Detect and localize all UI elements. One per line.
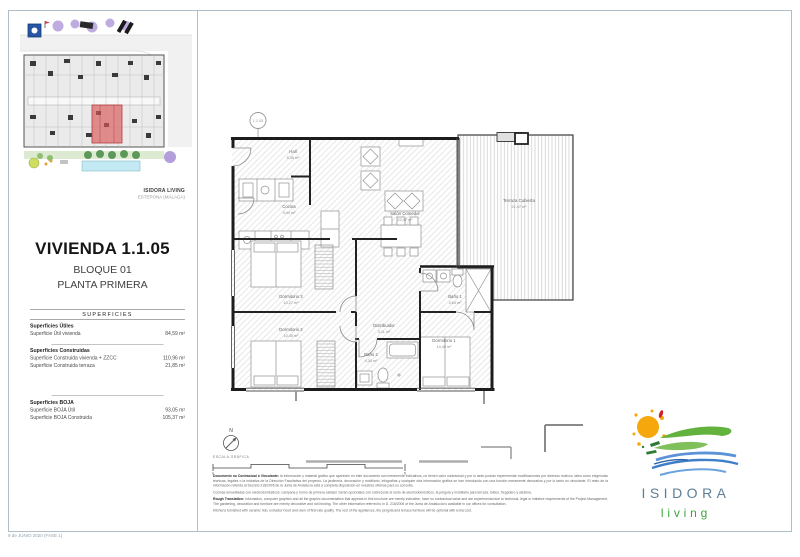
logo-sun-icon (633, 410, 666, 446)
surface-row: Superficie BOJA Construida 105,37 m² (30, 414, 185, 422)
sidebar-divider (197, 10, 198, 531)
surface-row: Superficie Útil vivienda 84,59 m² (30, 330, 185, 338)
room-area-terraza: 21,47 m² (512, 205, 528, 209)
legal-body-en: Information, computer graphics and all t… (213, 498, 608, 506)
legal-lead-en: Rough Translation: (213, 498, 244, 502)
bed-dormitorio2-icon (251, 341, 335, 387)
logo-tagline: living (661, 506, 711, 520)
surface-row: Superficie BOJA Útil 93,05 m² (30, 407, 185, 415)
room-label-bano2: Baño 2 (364, 352, 378, 357)
surface-label: Superficie BOJA Útil (30, 407, 75, 415)
room-label-terraza: Terraza Cubierta (503, 198, 535, 203)
logo-wordmark: ISIDORA (641, 485, 730, 501)
legal-paragraph-es: Documento no Contractual ó Vinculante: l… (213, 474, 608, 488)
room-area-dormitorio2: 10,45 m² (284, 334, 300, 338)
surface-value: 110,96 m² (163, 355, 185, 363)
floor-plan: 1.1.05 Hall 5,35 m² Cocina 9,44 m² Salón… (205, 95, 605, 477)
site-trees-top (53, 19, 134, 35)
neighbour-walls (296, 391, 583, 462)
group-title: Superficies Útiles (30, 324, 185, 330)
legal-paragraph-en: Rough Translation: Information, computer… (213, 497, 608, 507)
surface-value: 105,37 m² (162, 414, 185, 422)
legal-note-es: Cocinas amuebladas con electrodomésticos… (213, 490, 608, 495)
room-area-cocina: 9,44 m² (283, 211, 297, 215)
separator (52, 345, 164, 346)
legal-note-es-text: Cocinas amuebladas con electrodomésticos… (213, 491, 532, 495)
surfaces-panel: SUPERFICIES Superficies Útiles Superfici… (30, 309, 185, 422)
room-label-dormitorio1: Dormitorio 1 (432, 338, 456, 343)
room-label-salon: Salón Comedor (390, 211, 420, 216)
legal-lead-es: Documento no Contractual ó Vinculante: (213, 475, 279, 479)
surface-row: Superficie Construida terraza 21,85 m² (30, 362, 185, 370)
room-label-distribuidor: Distribuidor (373, 323, 395, 328)
legal-disclaimer: Documento no Contractual ó Vinculante: l… (213, 474, 608, 515)
room-label-bano1: Baño 1 (448, 294, 462, 299)
surfaces-group-utiles: Superficies Útiles Superficie Útil vivie… (30, 324, 185, 338)
room-label-dormitorio3: Dormitorio 3 (279, 294, 303, 299)
surfaces-group-construidas: Superficies Construidas Superficie Const… (30, 348, 185, 370)
block-label: BLOQUE 01 (8, 264, 197, 276)
scale-bar: ESCALA GRÁFICA 0 5 (212, 455, 406, 476)
legal-note-en: Kitchens furnished with ceramic hob, ext… (213, 509, 608, 514)
room-area-dormitorio3: 10,27 m² (284, 301, 300, 305)
site-key-plan (20, 15, 192, 173)
unit-marker-label: 1.1.05 (253, 119, 264, 123)
page-title: VIVIENDA 1.1.05 (8, 239, 197, 259)
surface-label: Superficie Construida vivienda + ZZCC (30, 355, 117, 363)
footer-date-note: 9 de JUNIO 2020 (FASE 1) (8, 533, 208, 538)
brand-block: ISIDORA LIVING ESTEPONA (MÁLAGA) (10, 188, 185, 200)
north-label: N (229, 428, 233, 434)
scale-label: ESCALA GRÁFICA (213, 455, 249, 459)
group-title: Superficies Construidas (30, 348, 185, 354)
logo-waves-icon (652, 453, 738, 475)
room-label-cocina: Cocina (282, 204, 296, 209)
surface-label: Superficie BOJA Construida (30, 414, 92, 422)
unit-marker-balloon: 1.1.05 (250, 113, 266, 138)
legal-note-en-text: Kitchens furnished with ceramic hob, ext… (213, 509, 472, 513)
surface-value: 93,05 m² (165, 407, 185, 415)
unit-title-block: VIVIENDA 1.1.05 BLOQUE 01 PLANTA PRIMERA (8, 239, 197, 291)
surfaces-header: SUPERFICIES (30, 309, 185, 320)
room-area-hall: 5,35 m² (287, 156, 301, 160)
separator (52, 396, 164, 397)
surface-label: Superficie Útil vivienda (30, 330, 81, 338)
site-highlighted-unit (92, 105, 122, 143)
room-label-dormitorio2: Dormitorio 2 (279, 327, 303, 332)
floor-label: PLANTA PRIMERA (8, 279, 197, 291)
surfaces-group-boja: Superficies BOJA Superficie BOJA Útil 93… (30, 400, 185, 422)
surface-value: 21,85 m² (165, 362, 185, 370)
surface-label: Superficie Construida terraza (30, 362, 95, 370)
surface-value: 84,59 m² (165, 330, 185, 338)
surface-row: Superficie Construida vivienda + ZZCC 11… (30, 355, 185, 363)
group-title: Superficies BOJA (30, 400, 185, 406)
room-label-hall: Hall (289, 149, 296, 154)
room-area-bano2: 4,30 m² (365, 359, 379, 363)
room-area-bano1: 4,64 m² (449, 301, 463, 305)
site-garden-pool (24, 150, 176, 171)
isidora-living-logo: ISIDORA living (612, 408, 790, 530)
brand-location: ESTEPONA (MÁLAGA) (10, 194, 185, 200)
north-arrow-icon: N (224, 428, 239, 451)
bed-dormitorio3-icon (251, 241, 333, 289)
site-entrance-icon (28, 21, 50, 37)
room-area-distribuidor: 3,11 m² (378, 330, 391, 334)
dining-table-icon (381, 217, 421, 256)
room-area-salon: 22,47 m² (398, 218, 414, 222)
room-area-dormitorio1: 14,40 m² (437, 345, 453, 349)
